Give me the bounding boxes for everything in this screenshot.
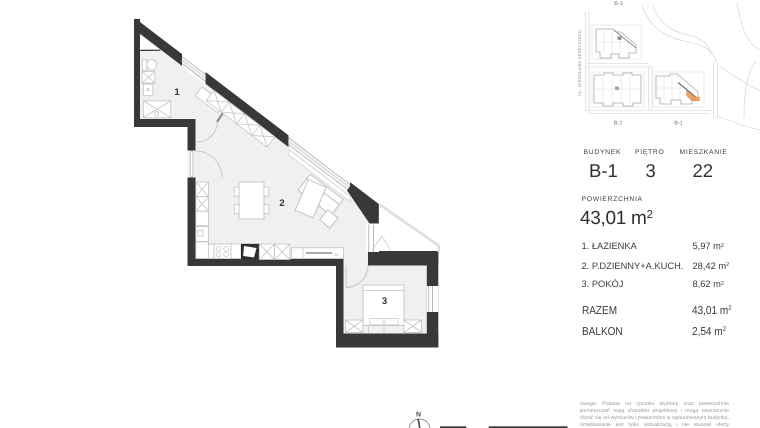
svg-text:3: 3 xyxy=(382,296,387,307)
svg-text:2: 2 xyxy=(279,198,284,209)
svg-text:tv: tv xyxy=(335,252,338,257)
svg-text:B-2: B-2 xyxy=(614,121,622,127)
svg-text:UL. MIROSŁAWA DERECKIEGO: UL. MIROSŁAWA DERECKIEGO xyxy=(577,30,582,96)
svg-text:B-3: B-3 xyxy=(614,1,622,7)
svg-text:N: N xyxy=(416,412,421,419)
svg-text:1: 1 xyxy=(174,87,180,98)
svg-text:B-1: B-1 xyxy=(674,121,682,127)
